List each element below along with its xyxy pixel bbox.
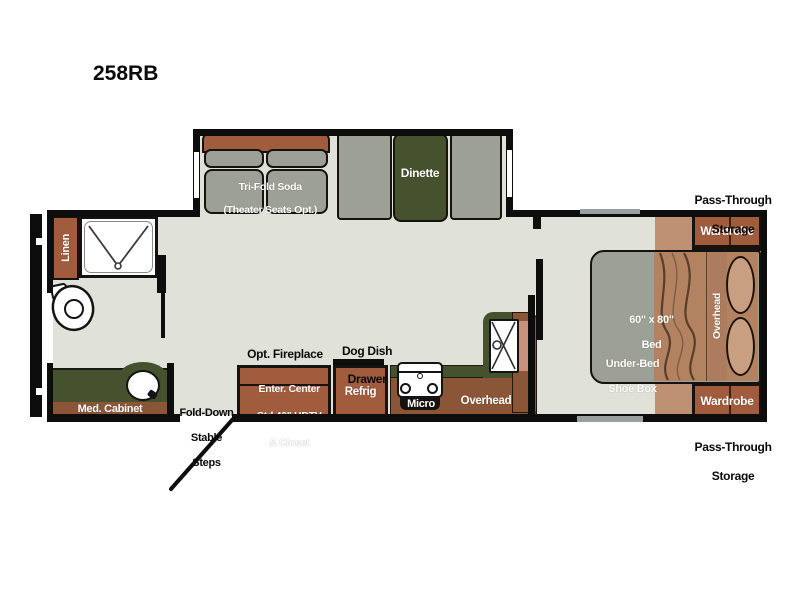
top-window-marker <box>580 209 640 214</box>
pass-through-top-line1: Pass-Through <box>695 193 772 207</box>
slideout-top-wall <box>193 129 513 136</box>
stove <box>397 362 443 398</box>
linen-label: Linen <box>60 234 72 262</box>
kitchen-sink <box>489 319 519 373</box>
pillow-bottom <box>726 317 755 376</box>
bath-divider-wall <box>157 255 166 293</box>
steps-line2: Stable <box>191 432 222 444</box>
bottom-wall-right <box>232 414 767 422</box>
underbed-line2: Shoe Box <box>608 383 656 395</box>
dog-dish-label: Dog Dish Drawer <box>320 330 402 400</box>
rear-cap-notch-bottom <box>36 388 42 395</box>
pass-through-bottom-label: Pass-Through Storage <box>672 425 782 498</box>
dinette-label: Dinette <box>384 166 456 180</box>
linen-cabinet: Linen <box>52 216 79 280</box>
shower <box>79 216 158 278</box>
wardrobe-bottom-label: Wardrobe <box>692 394 762 408</box>
toilet <box>46 277 100 335</box>
sofa-back-cushion-right <box>266 149 328 168</box>
steps-line3: Steps <box>192 457 220 469</box>
underbed-line1: Under-Bed <box>606 358 660 370</box>
bedroom-divider-upper <box>536 259 543 340</box>
kitchen-sink-icon <box>491 321 516 370</box>
top-wall-left <box>47 210 193 217</box>
bath-pocket-door <box>161 293 165 338</box>
pillow-top <box>726 256 755 314</box>
underbed-label: Under-Bed Shoe Box <box>585 345 669 408</box>
shower-drain-icon <box>82 219 155 275</box>
bed-overhead-cabinet: Overhead <box>706 252 728 381</box>
slideout-right-window <box>507 150 512 197</box>
dog-dish-line1: Dog Dish <box>342 344 392 358</box>
bedroom-wall-stub <box>533 216 541 229</box>
sofa-label: Tri-Fold Soda (Theater Seats Opt.) <box>189 170 341 228</box>
steps-line1: Fold-Down <box>179 407 233 419</box>
pass-through-bottom-line1: Pass-Through <box>695 440 772 454</box>
sofa-label-line2: (Theater Seats Opt.) <box>223 204 317 216</box>
bottom-window-marker <box>577 416 643 422</box>
bed-size-line1: 60" x 80" <box>629 314 673 326</box>
left-wall-lower <box>47 363 53 419</box>
left-wall-upper <box>47 210 53 293</box>
page-title: 258RB <box>93 62 173 86</box>
pass-through-top-line2: Storage <box>712 222 755 236</box>
bedroom-divider-lower <box>528 295 535 416</box>
entertainment-center-line1: Enter. Center <box>259 383 320 395</box>
sofa-label-line1: Tri-Fold Soda <box>239 181 302 193</box>
bed-overhead-label: Overhead <box>711 293 723 339</box>
stove-knob-icon <box>417 373 423 379</box>
rear-cap-notch-top <box>36 238 42 245</box>
micro-label: Micro <box>398 398 444 410</box>
entertainment-center-line3: & Closet <box>269 437 309 449</box>
slideout-left-window <box>194 152 199 198</box>
stove-burner-right-icon <box>427 383 438 394</box>
dinette-bench-right <box>450 133 502 220</box>
pass-through-top-label: Pass-Through Storage <box>672 178 782 251</box>
dog-dish-line2: Drawer <box>348 372 387 386</box>
pass-through-bottom-line2: Storage <box>712 469 755 483</box>
fold-down-steps-label: Fold-Down Stable Steps <box>159 394 243 482</box>
floorplan-canvas: 258RB Linen Med. Cabinet Tri-Fold Soda (… <box>0 0 800 600</box>
kitchen-overhead-label: Overhead <box>449 395 523 407</box>
sofa-back-cushion-left <box>204 149 264 168</box>
